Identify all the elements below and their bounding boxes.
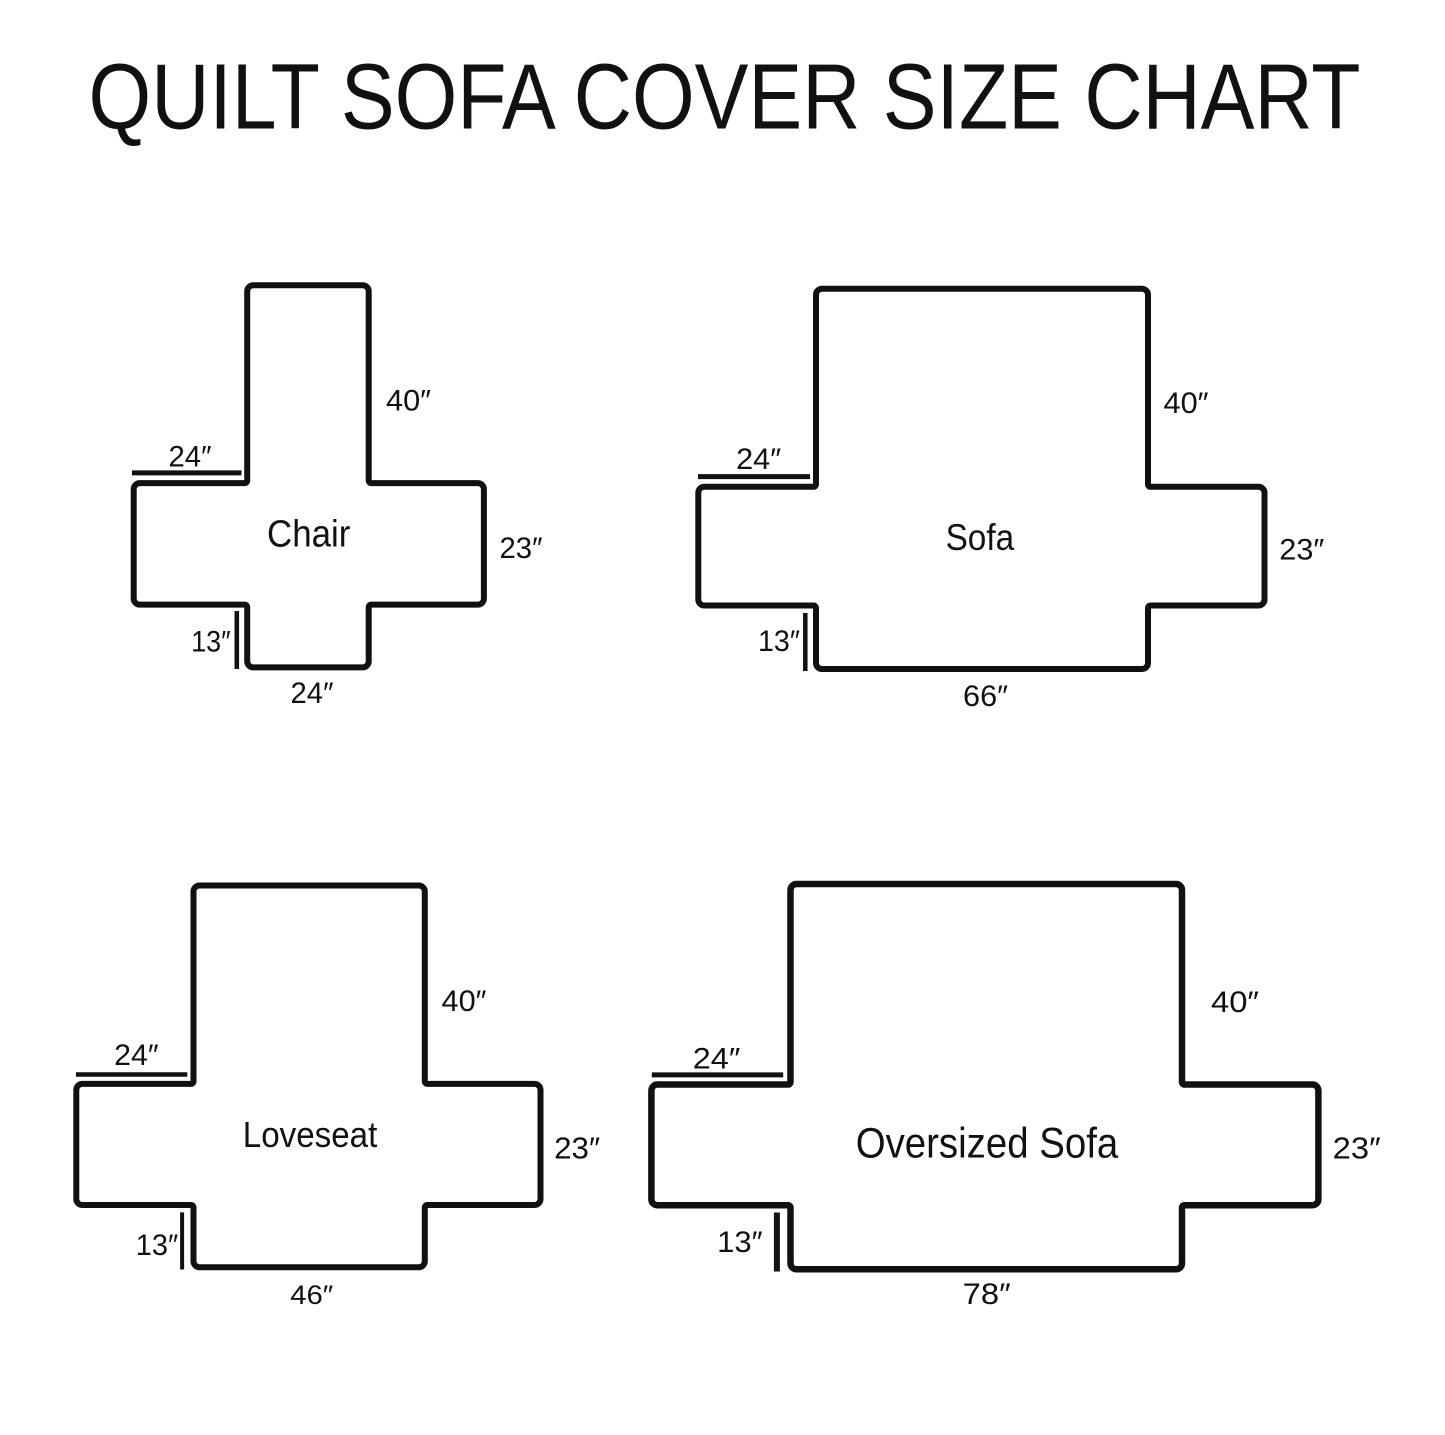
svg-text:24″: 24″	[114, 1039, 159, 1072]
svg-text:40″: 40″	[1211, 986, 1259, 1019]
svg-text:Sofa: Sofa	[946, 517, 1015, 558]
svg-text:40″: 40″	[386, 385, 431, 418]
svg-text:24″: 24″	[693, 1042, 741, 1075]
svg-text:Chair: Chair	[267, 513, 351, 555]
svg-text:QUILT SOFA COVER SIZE CHART: QUILT SOFA COVER SIZE CHART	[89, 45, 1361, 149]
svg-text:24″: 24″	[736, 443, 781, 476]
svg-text:23″: 23″	[554, 1131, 600, 1166]
svg-text:13″: 13″	[717, 1226, 763, 1259]
svg-text:13″: 13″	[191, 625, 231, 658]
svg-text:24″: 24″	[169, 440, 212, 473]
svg-text:23″: 23″	[1333, 1131, 1381, 1166]
svg-text:40″: 40″	[1164, 387, 1209, 420]
svg-text:23″: 23″	[1279, 533, 1324, 566]
svg-text:23″: 23″	[500, 532, 543, 565]
svg-text:13″: 13″	[136, 1229, 179, 1262]
svg-text:78″: 78″	[963, 1278, 1011, 1311]
svg-text:24″: 24″	[291, 677, 334, 710]
svg-text:66″: 66″	[963, 680, 1008, 713]
svg-text:Oversized Sofa: Oversized Sofa	[856, 1120, 1119, 1168]
svg-text:13″: 13″	[758, 625, 800, 658]
svg-text:Loveseat: Loveseat	[243, 1114, 377, 1155]
svg-text:40″: 40″	[442, 985, 487, 1018]
svg-text:46″: 46″	[290, 1280, 333, 1310]
